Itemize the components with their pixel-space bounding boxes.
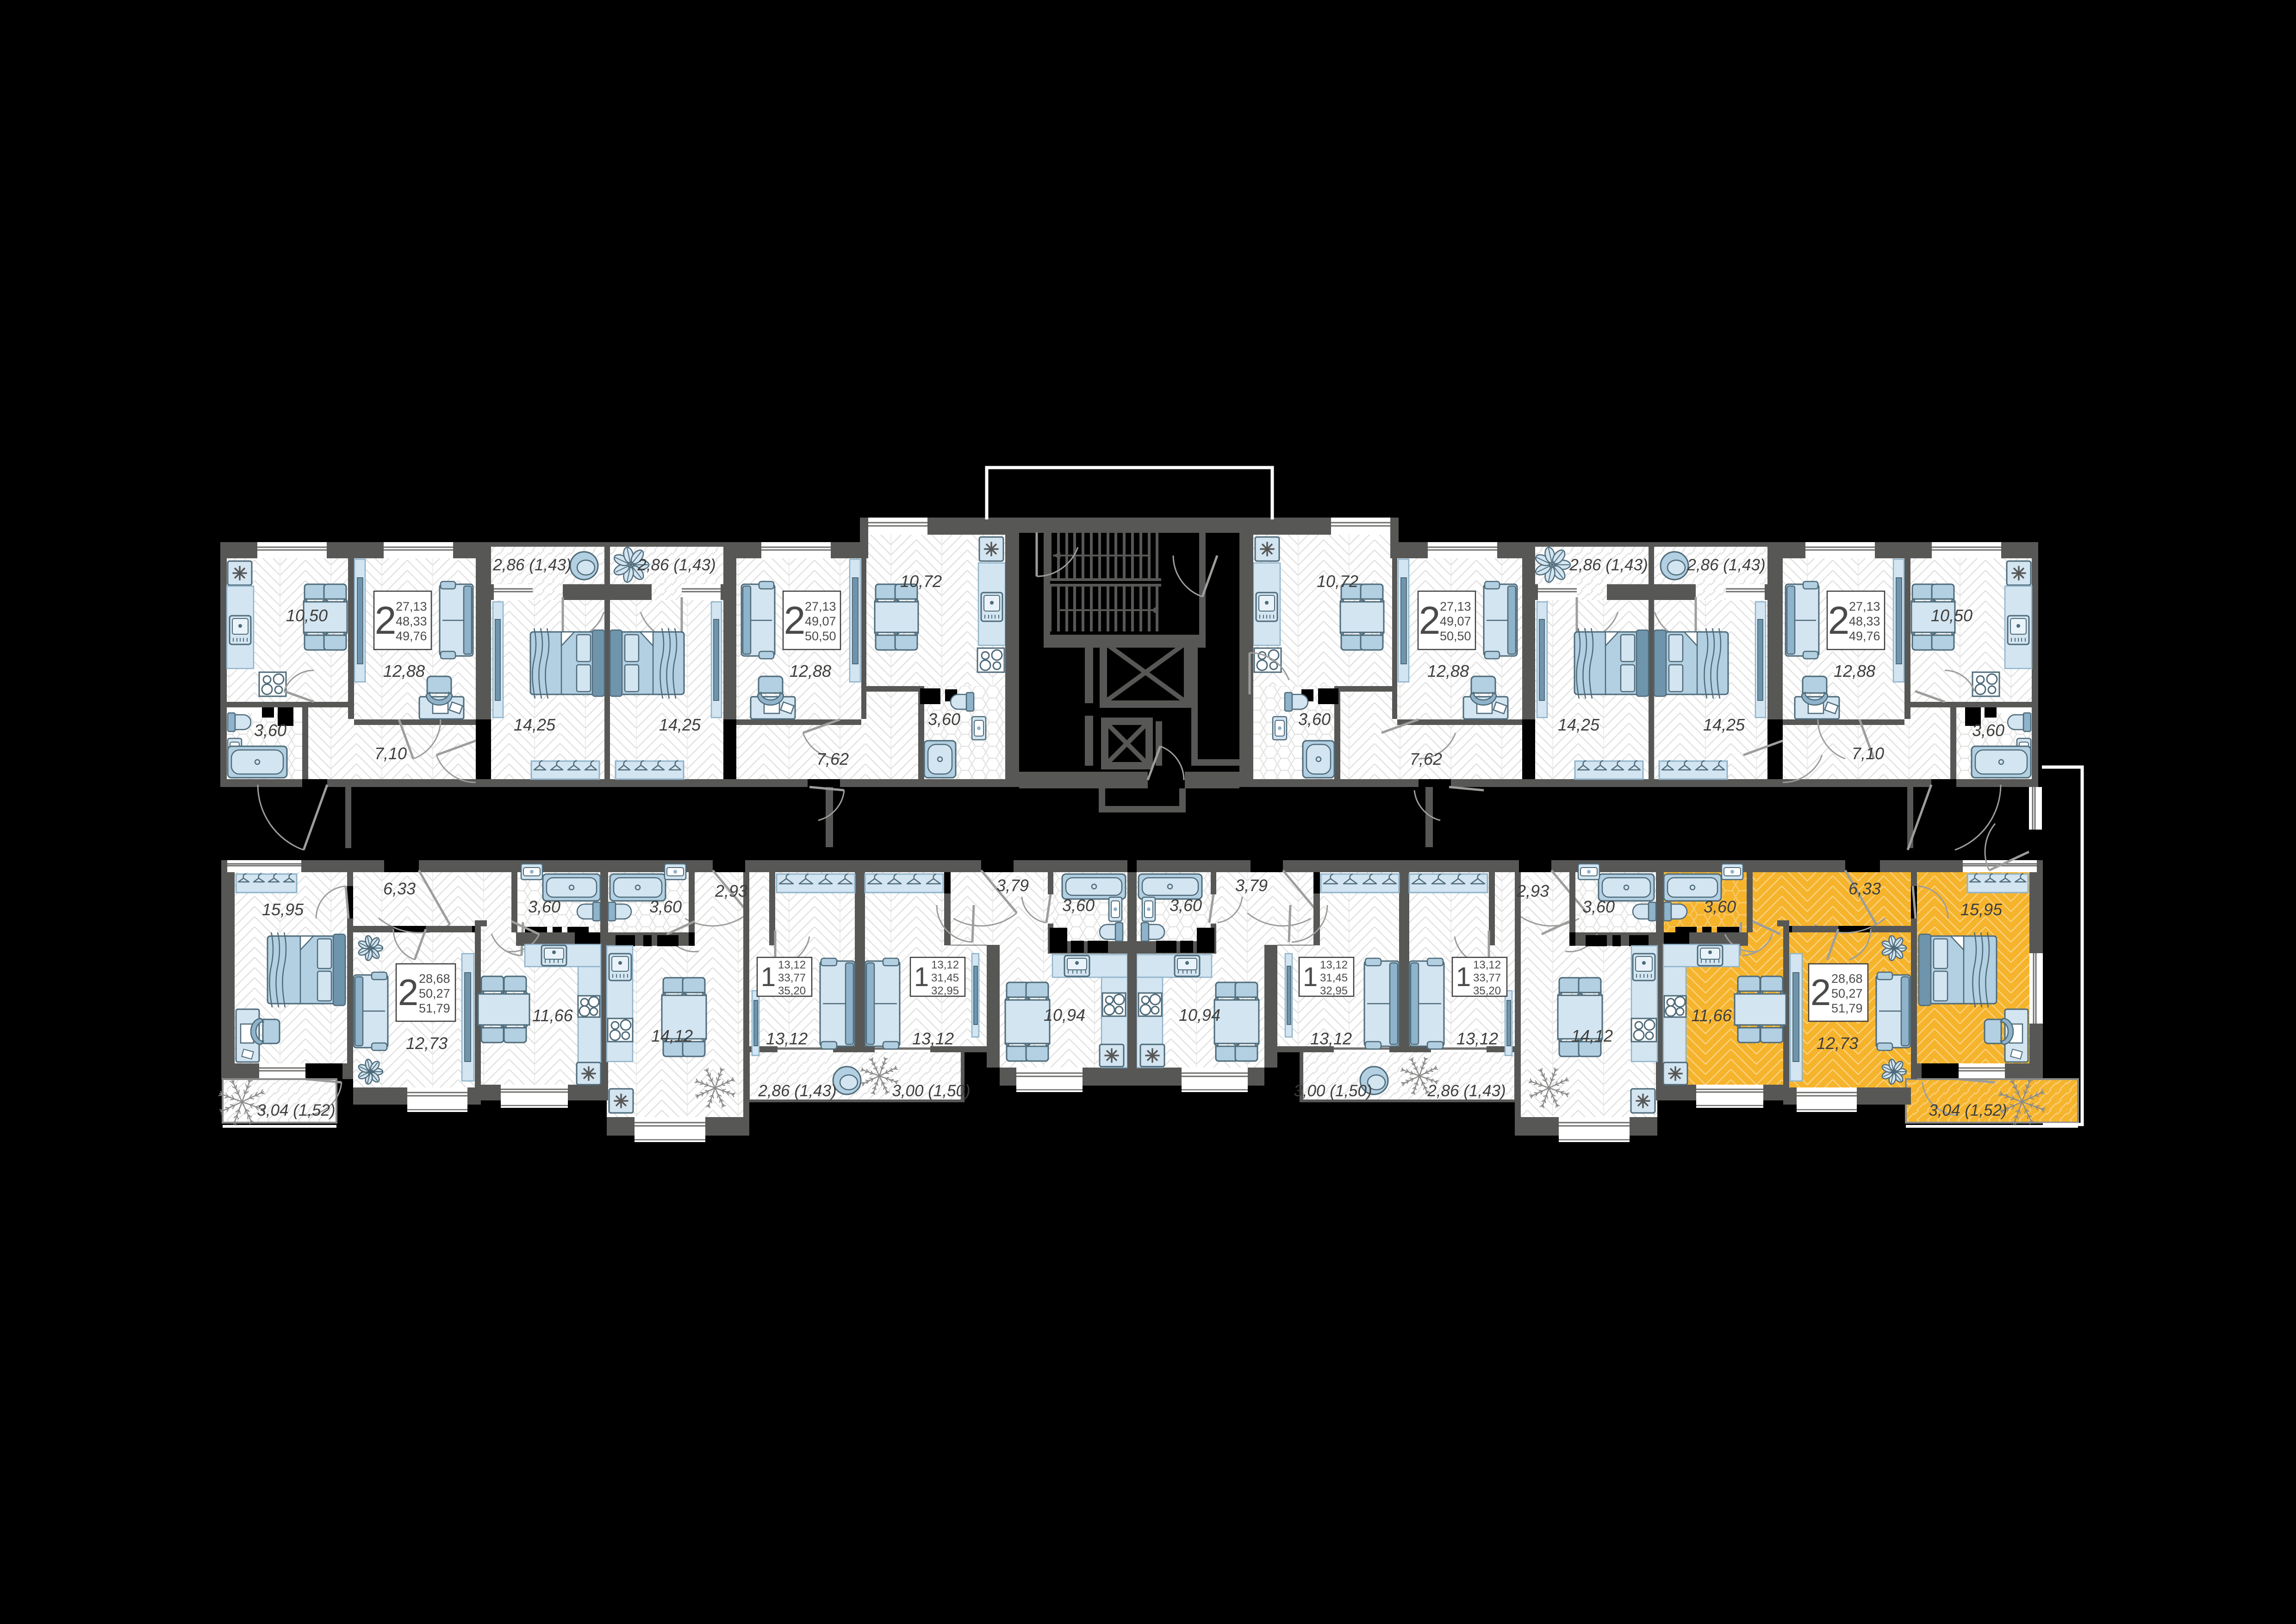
svg-text:2,86 (1,43): 2,86 (1,43) — [492, 556, 571, 574]
svg-text:27,13: 27,13 — [1849, 600, 1880, 613]
svg-text:3,60: 3,60 — [254, 721, 286, 740]
svg-text:7,10: 7,10 — [1852, 744, 1884, 763]
svg-text:28,68: 28,68 — [1831, 972, 1863, 986]
svg-text:31,45: 31,45 — [931, 972, 959, 984]
svg-text:1: 1 — [914, 962, 929, 992]
svg-text:14,25: 14,25 — [1558, 715, 1600, 734]
svg-text:48,33: 48,33 — [1849, 614, 1880, 628]
svg-text:13,12: 13,12 — [766, 1029, 808, 1048]
svg-text:1: 1 — [1303, 962, 1318, 992]
svg-text:15,95: 15,95 — [262, 900, 304, 919]
svg-text:10,50: 10,50 — [286, 606, 328, 625]
svg-text:49,76: 49,76 — [396, 629, 427, 643]
svg-text:3,60: 3,60 — [1298, 710, 1331, 729]
svg-text:14,25: 14,25 — [659, 715, 701, 734]
svg-text:14,12: 14,12 — [1571, 1026, 1613, 1045]
svg-text:7,62: 7,62 — [816, 750, 849, 768]
svg-text:10,94: 10,94 — [1179, 1006, 1220, 1024]
svg-text:13,12: 13,12 — [1320, 959, 1348, 971]
svg-text:7,62: 7,62 — [1410, 750, 1442, 768]
svg-text:12,88: 12,88 — [790, 662, 831, 681]
svg-text:35,20: 35,20 — [1473, 985, 1501, 997]
svg-text:3,60: 3,60 — [1972, 721, 2004, 740]
svg-text:3,04 (1,52): 3,04 (1,52) — [1929, 1101, 2007, 1119]
svg-text:10,72: 10,72 — [900, 572, 942, 591]
svg-text:3,60: 3,60 — [1170, 896, 1202, 915]
svg-text:51,79: 51,79 — [419, 1001, 450, 1015]
svg-text:13,12: 13,12 — [1456, 1029, 1498, 1048]
svg-text:3,60: 3,60 — [528, 897, 560, 916]
svg-text:10,50: 10,50 — [1931, 606, 1972, 625]
svg-text:2,93: 2,93 — [715, 881, 747, 900]
svg-text:3,00 (1,50): 3,00 (1,50) — [892, 1082, 970, 1100]
svg-text:3,60: 3,60 — [649, 897, 682, 916]
svg-text:14,25: 14,25 — [1703, 715, 1745, 734]
svg-text:2,86 (1,43): 2,86 (1,43) — [758, 1082, 836, 1100]
svg-text:12,88: 12,88 — [383, 662, 425, 681]
svg-text:15,95: 15,95 — [1960, 900, 2003, 919]
svg-text:13,12: 13,12 — [1473, 959, 1501, 971]
svg-text:10,72: 10,72 — [1317, 572, 1358, 591]
svg-text:2: 2 — [1828, 599, 1850, 642]
svg-text:33,77: 33,77 — [1473, 972, 1501, 984]
svg-text:12,88: 12,88 — [1427, 662, 1469, 681]
svg-text:2,86 (1,43): 2,86 (1,43) — [1427, 1082, 1506, 1100]
svg-text:13,12: 13,12 — [931, 959, 959, 971]
svg-text:28,68: 28,68 — [419, 972, 450, 986]
svg-text:13,12: 13,12 — [912, 1029, 954, 1048]
svg-text:2: 2 — [1419, 599, 1441, 642]
svg-text:12,73: 12,73 — [1817, 1034, 1858, 1053]
svg-text:49,76: 49,76 — [1849, 629, 1880, 643]
svg-text:13,12: 13,12 — [778, 959, 806, 971]
svg-text:3,00 (1,50): 3,00 (1,50) — [1294, 1082, 1372, 1100]
svg-text:49,07: 49,07 — [805, 614, 836, 628]
svg-text:14,12: 14,12 — [651, 1026, 693, 1045]
svg-text:13,12: 13,12 — [1310, 1029, 1352, 1048]
svg-text:3,60: 3,60 — [1062, 896, 1095, 915]
svg-text:10,94: 10,94 — [1044, 1006, 1085, 1024]
svg-text:14,25: 14,25 — [514, 715, 556, 734]
svg-text:11,66: 11,66 — [532, 1006, 573, 1025]
svg-text:35,20: 35,20 — [778, 985, 806, 997]
svg-text:2,86 (1,43): 2,86 (1,43) — [637, 556, 716, 574]
svg-text:50,27: 50,27 — [1831, 987, 1863, 1000]
svg-text:11,66: 11,66 — [1691, 1006, 1732, 1025]
svg-text:2,93: 2,93 — [1516, 881, 1549, 900]
svg-text:32,95: 32,95 — [1320, 985, 1348, 997]
svg-text:12,73: 12,73 — [406, 1034, 448, 1053]
svg-text:49,07: 49,07 — [1440, 614, 1471, 628]
svg-text:3,60: 3,60 — [928, 710, 960, 729]
svg-text:1: 1 — [1456, 962, 1471, 992]
svg-text:2: 2 — [398, 972, 419, 1013]
svg-text:3,79: 3,79 — [1235, 876, 1268, 895]
svg-text:12,88: 12,88 — [1834, 662, 1875, 681]
svg-text:2: 2 — [375, 599, 397, 642]
svg-text:50,50: 50,50 — [1440, 629, 1471, 643]
svg-text:3,60: 3,60 — [1704, 897, 1736, 916]
svg-text:32,95: 32,95 — [931, 985, 959, 997]
svg-text:2,86 (1,43): 2,86 (1,43) — [1569, 556, 1648, 574]
svg-text:51,79: 51,79 — [1831, 1001, 1863, 1015]
svg-text:50,27: 50,27 — [419, 987, 450, 1000]
svg-text:2,86 (1,43): 2,86 (1,43) — [1686, 556, 1765, 574]
svg-text:31,45: 31,45 — [1320, 972, 1348, 984]
svg-text:2: 2 — [1811, 972, 1831, 1013]
svg-text:6,33: 6,33 — [1848, 879, 1881, 898]
svg-text:6,33: 6,33 — [383, 879, 416, 898]
svg-text:27,13: 27,13 — [1440, 600, 1471, 613]
svg-text:7,10: 7,10 — [374, 744, 407, 763]
svg-text:48,33: 48,33 — [396, 614, 427, 628]
svg-text:3,60: 3,60 — [1582, 897, 1615, 916]
svg-text:27,13: 27,13 — [805, 600, 836, 613]
svg-text:3,04 (1,52): 3,04 (1,52) — [257, 1101, 335, 1119]
svg-text:33,77: 33,77 — [778, 972, 806, 984]
svg-text:3,79: 3,79 — [996, 876, 1029, 895]
svg-text:2: 2 — [784, 599, 806, 642]
svg-text:50,50: 50,50 — [805, 629, 836, 643]
svg-text:27,13: 27,13 — [396, 600, 427, 613]
svg-text:1: 1 — [761, 962, 776, 992]
